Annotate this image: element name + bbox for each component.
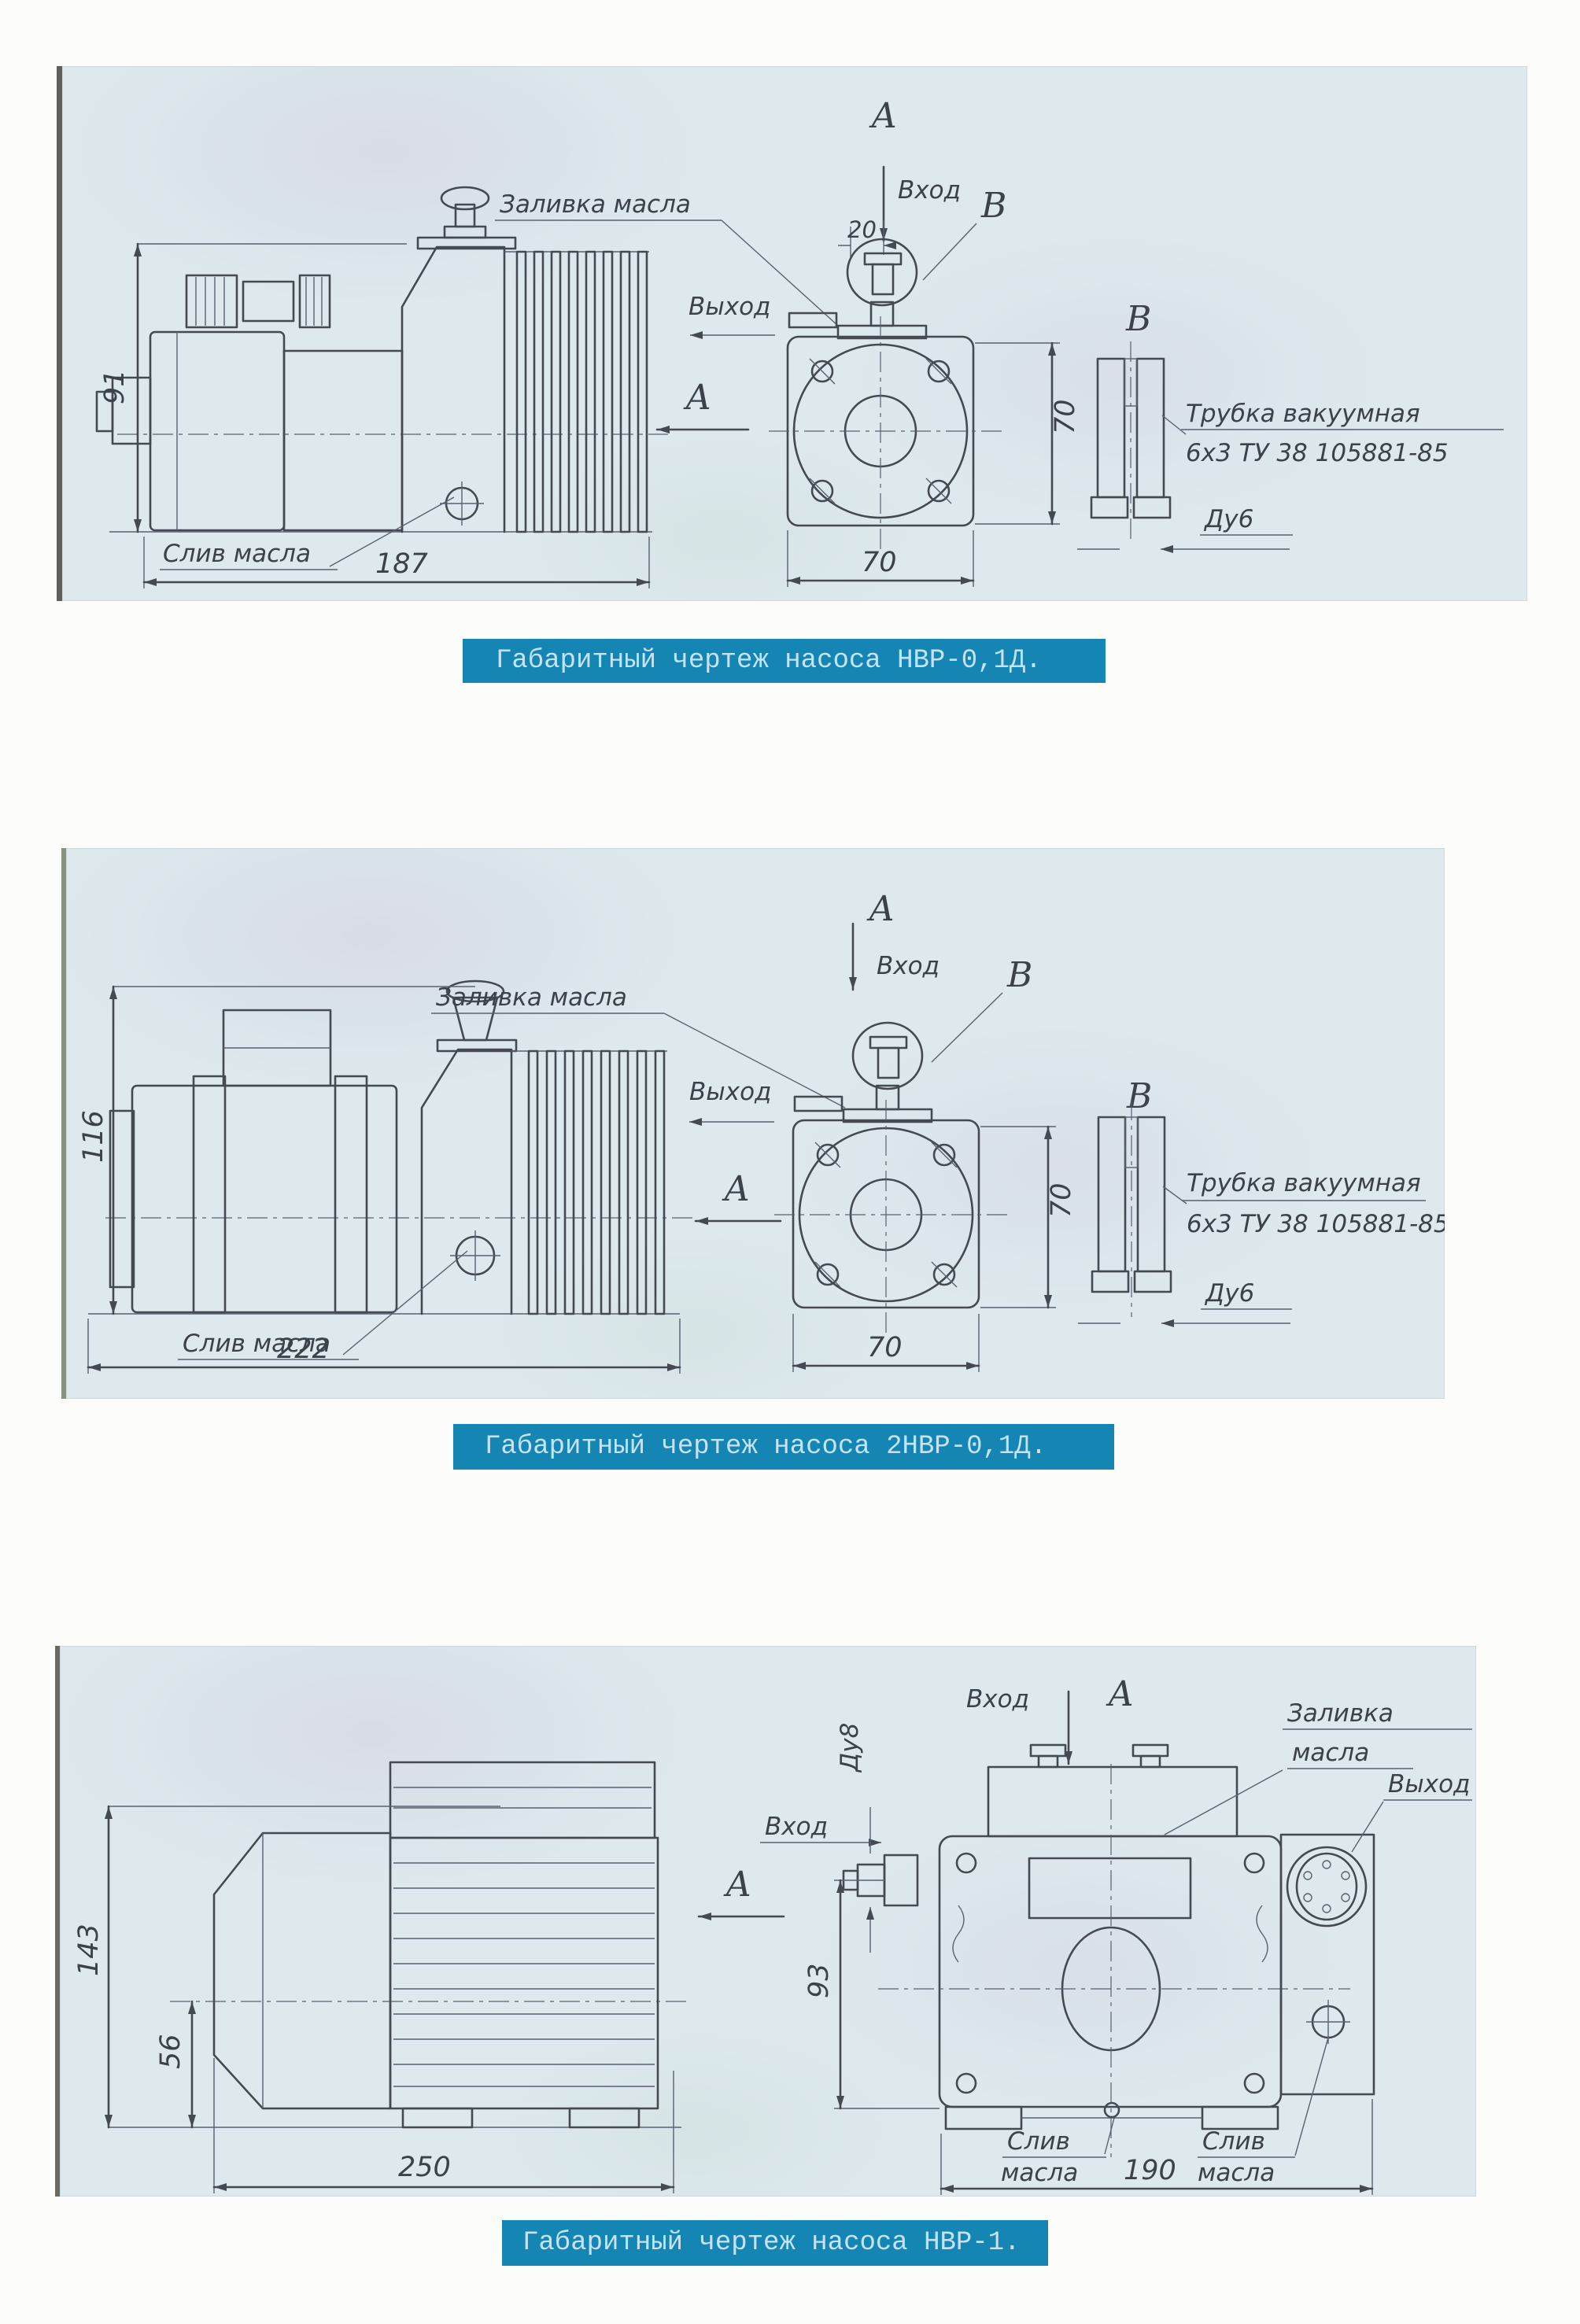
tube-note-line2: 6х3 ТУ 38 105881-85 xyxy=(1186,439,1449,467)
junction-box xyxy=(223,1010,330,1086)
dim-axis-height: 56 xyxy=(155,2034,186,2069)
drain-right-line1: Слив xyxy=(1202,2127,1265,2156)
outlet-flange xyxy=(1281,1835,1374,2094)
drain-left-line2: масла xyxy=(1001,2159,1078,2187)
dim-flange-width: 70 xyxy=(867,1332,903,1363)
drain-right-line2: масла xyxy=(1198,2159,1275,2187)
caption-text: Габаритный чертеж насоса НВР-0,1Д. xyxy=(496,646,1042,676)
view-a-arrow-label: А xyxy=(722,1169,750,1209)
bore-label: Ду6 xyxy=(1203,505,1253,533)
outlet-label: Выход xyxy=(688,293,771,321)
oil-tank-cover xyxy=(988,1745,1237,1836)
cooling-fins xyxy=(504,252,649,532)
oil-fill-label-line1: Заливка xyxy=(1287,1699,1394,1728)
section-b: В Трубка вакуумная 6х3 ТУ 38 105881-85 Д… xyxy=(1078,1076,1445,1323)
view-a-arrow-label: А xyxy=(683,378,711,418)
inlet-top-label: Вход xyxy=(966,1685,1029,1713)
foot xyxy=(570,2108,639,2127)
drawing-2nvr-01d: Слив масла 116 222 А Вход В Заливка масл… xyxy=(66,848,1445,1399)
drawing-panel-nvr-01d: Слив масла 91 187 А Вход 20 Заливка масл… xyxy=(57,66,1527,601)
mounting-flange xyxy=(774,1100,1009,1333)
dim-flange-height: 70 xyxy=(1046,1182,1077,1218)
dim-overall-length: 250 xyxy=(398,2152,451,2183)
caption-text: Габаритный чертеж насоса НВР-1. xyxy=(522,2228,1021,2258)
front-view: А Вход 20 Заливка масла В Выход А xyxy=(495,96,1081,587)
dim-overall-height: 91 xyxy=(99,369,131,404)
inlet-side-label: Вход xyxy=(765,1813,828,1841)
outlet-port xyxy=(789,313,836,327)
foot xyxy=(403,2108,472,2127)
dim-inlet-offset: 20 xyxy=(847,216,877,243)
figure-caption-nvr-1: Габаритный чертеж насоса НВР-1. xyxy=(502,2220,1048,2266)
view-a-top-label: А xyxy=(866,889,895,929)
drawing-panel-nvr-1: 143 56 250 Вход А Заливка масла xyxy=(55,1646,1476,2197)
view-a-top-label: А xyxy=(869,96,897,136)
figure-caption-2nvr-01d: Габаритный чертеж насоса 2НВР-0,1Д. xyxy=(453,1424,1114,1470)
dim-inlet-height: 93 xyxy=(803,1963,835,1998)
drain-left-line1: Слив xyxy=(1007,2127,1070,2156)
pump-housing xyxy=(284,351,402,530)
tube-note-line1: Трубка вакуумная xyxy=(1186,400,1420,428)
section-b: В Трубка вакуумная 6х3 ТУ 38 105881-85 Д… xyxy=(1077,299,1504,549)
dim-flange-height: 70 xyxy=(1050,399,1081,434)
tube-note-line1: Трубка вакуумная xyxy=(1187,1169,1421,1197)
oil-tank xyxy=(402,247,504,532)
side-view: Слив масла 91 187 xyxy=(97,187,668,588)
bore-label: Ду8 xyxy=(836,1723,864,1773)
foot xyxy=(946,2107,1021,2129)
oil-tank xyxy=(422,1049,511,1314)
vacuum-tube-section xyxy=(1098,1117,1125,1271)
side-view: 143 56 250 xyxy=(73,1762,689,2193)
foot xyxy=(1202,2107,1278,2129)
front-view: Вход А Заливка масла Вход Ду8 xyxy=(699,1674,1472,2195)
oil-fill-label: Заливка масла xyxy=(436,983,627,1012)
inlet-label: Вход xyxy=(898,176,961,205)
inlet-knob xyxy=(844,1023,932,1122)
oil-drain-port xyxy=(440,481,484,526)
side-view: Слив масла 116 222 xyxy=(78,981,696,1374)
connector-assembly xyxy=(186,275,330,327)
section-b-pointer-label: В xyxy=(980,186,1006,226)
oil-drain-port xyxy=(450,1230,500,1281)
dim-mount-length: 190 xyxy=(1124,2155,1176,2186)
carry-knob xyxy=(441,187,489,238)
oil-fill-label: Заливка масла xyxy=(500,190,691,219)
motor-body xyxy=(132,1086,397,1312)
outlet-label: Выход xyxy=(689,1078,772,1106)
cooling-fins xyxy=(390,1838,658,2108)
vacuum-tube-section xyxy=(1098,359,1124,497)
oil-drain-port-bottom xyxy=(1105,2103,1119,2117)
motor-body xyxy=(214,1833,390,2108)
drawing-panel-2nvr-01d: Слив масла 116 222 А Вход В Заливка масл… xyxy=(61,848,1445,1399)
view-a-arrow-label: А xyxy=(723,1865,751,1905)
dim-overall-height: 143 xyxy=(73,1924,105,1976)
drawing-nvr-01d: Слив масла 91 187 А Вход 20 Заливка масл… xyxy=(62,66,1527,601)
section-b-view-label: В xyxy=(1125,299,1151,339)
section-b-view-label: В xyxy=(1126,1076,1152,1116)
pump-top-block xyxy=(390,1762,655,1838)
outlet-port xyxy=(795,1097,842,1111)
dim-overall-length: 187 xyxy=(375,548,428,580)
nameplate xyxy=(1029,1858,1191,1918)
tube-note-line2: 6х3 ТУ 38 105881-85 xyxy=(1187,1210,1445,1238)
oil-drain-label: Слив масла xyxy=(163,540,311,568)
dim-overall-height: 116 xyxy=(78,1110,109,1163)
figure-caption-nvr-01d: Габаритный чертеж насоса НВР-0,1Д. xyxy=(463,639,1106,683)
section-b-pointer-label: В xyxy=(1006,955,1032,995)
view-a-top-label: А xyxy=(1106,1674,1134,1714)
pump-body xyxy=(878,1764,1350,2157)
dim-flange-width: 70 xyxy=(862,547,897,578)
outlet-label: Выход xyxy=(1388,1770,1471,1798)
oil-fill-label-line2: масла xyxy=(1292,1739,1369,1767)
dim-overall-length: 222 xyxy=(277,1334,330,1365)
mounting-flange xyxy=(769,316,1003,549)
bore-label: Ду6 xyxy=(1204,1279,1254,1308)
cooling-fins xyxy=(511,1051,667,1314)
inlet-knob xyxy=(838,239,926,338)
drawing-nvr-1: 143 56 250 Вход А Заливка масла xyxy=(60,1646,1476,2197)
motor-body xyxy=(150,332,284,530)
inlet-label: Вход xyxy=(877,952,940,980)
caption-text: Габаритный чертеж насоса 2НВР-0,1Д. xyxy=(485,1432,1047,1462)
